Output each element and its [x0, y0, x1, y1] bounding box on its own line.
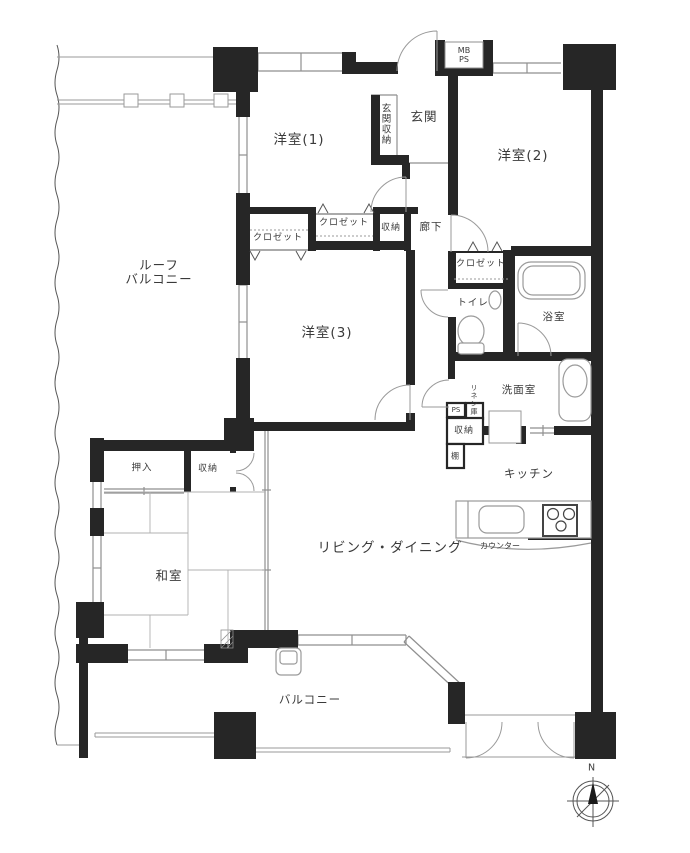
label-toilet: トイレ — [457, 299, 489, 310]
label-roof-balcony: ルーフ バルコニー — [125, 259, 192, 288]
toilet-hand-basin — [489, 291, 501, 309]
label-oshiire: 押入 — [131, 464, 152, 475]
label-washroom-storage: 収納 — [454, 426, 474, 436]
label-pipe-space: PS — [452, 406, 461, 414]
toilet-door — [421, 290, 448, 317]
room3-door — [375, 385, 410, 420]
tatami-grid — [104, 492, 265, 648]
label-shelf: 棚 — [451, 451, 459, 460]
floor-plan-drawing — [0, 0, 690, 853]
compass-icon — [567, 777, 619, 827]
storage-double-door — [236, 453, 254, 491]
balcony-french-doors — [465, 715, 575, 758]
label-hall-storage: 収納 — [381, 223, 401, 233]
bathroom-door — [518, 323, 551, 356]
kitchen-counter — [456, 501, 591, 549]
label-closet-room1: クロゼット — [319, 218, 369, 228]
label-closet-room2: クロゼット — [456, 259, 506, 269]
entrance-door — [397, 31, 437, 71]
label-mb-ps: MB PS — [458, 46, 470, 64]
floor-plan: ルーフ バルコニー 洋室(1) 玄関 玄関収納 MB PS 洋室(2) クロゼッ… — [0, 0, 690, 853]
label-western-room-1: 洋室(1) — [273, 133, 324, 149]
kitchen-sink-icon — [479, 506, 524, 533]
bathtub-icon — [518, 262, 585, 299]
washing-machine-space — [489, 411, 521, 443]
label-linen-closet: リネン庫 — [470, 384, 478, 416]
label-western-room-3: 洋室(3) — [301, 326, 352, 342]
balcony-sink-icon — [276, 648, 301, 675]
label-compass-north: N — [588, 764, 596, 775]
label-washroom: 洗面室 — [502, 384, 537, 396]
label-living-dining: リビング・ダイニング — [318, 541, 463, 557]
washbasin-icon — [559, 359, 591, 421]
label-balcony: バルコニー — [279, 693, 341, 706]
stove-icon — [543, 505, 577, 536]
room2-door — [451, 215, 488, 252]
label-entrance-storage: 玄関収納 — [379, 103, 390, 145]
washroom-door — [422, 380, 449, 407]
cut-line-wavy — [55, 45, 59, 745]
label-hallway: 廊下 — [420, 221, 443, 233]
label-japanese-room-storage: 収納 — [198, 464, 218, 474]
label-entrance: 玄関 — [410, 110, 437, 124]
label-bathroom: 浴室 — [543, 311, 566, 323]
label-japanese-room: 和室 — [155, 569, 182, 583]
label-counter: カウンター — [480, 541, 520, 550]
label-closet-room3: クロゼット — [253, 233, 303, 243]
room1-door — [371, 177, 406, 212]
label-kitchen: キッチン — [504, 467, 554, 480]
counter-front-curve — [456, 540, 591, 549]
label-western-room-2: 洋室(2) — [497, 149, 548, 165]
windows — [93, 53, 561, 692]
